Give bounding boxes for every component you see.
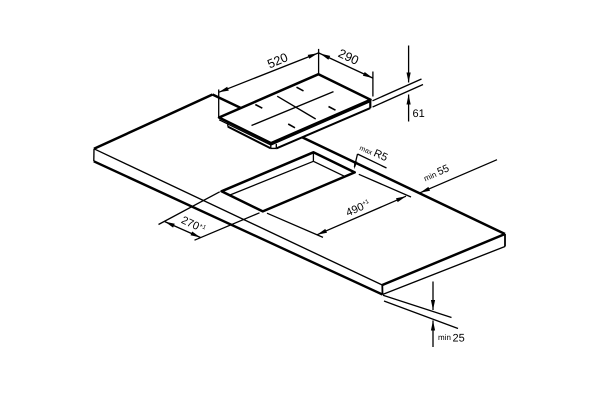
svg-text:61: 61 xyxy=(413,108,425,120)
